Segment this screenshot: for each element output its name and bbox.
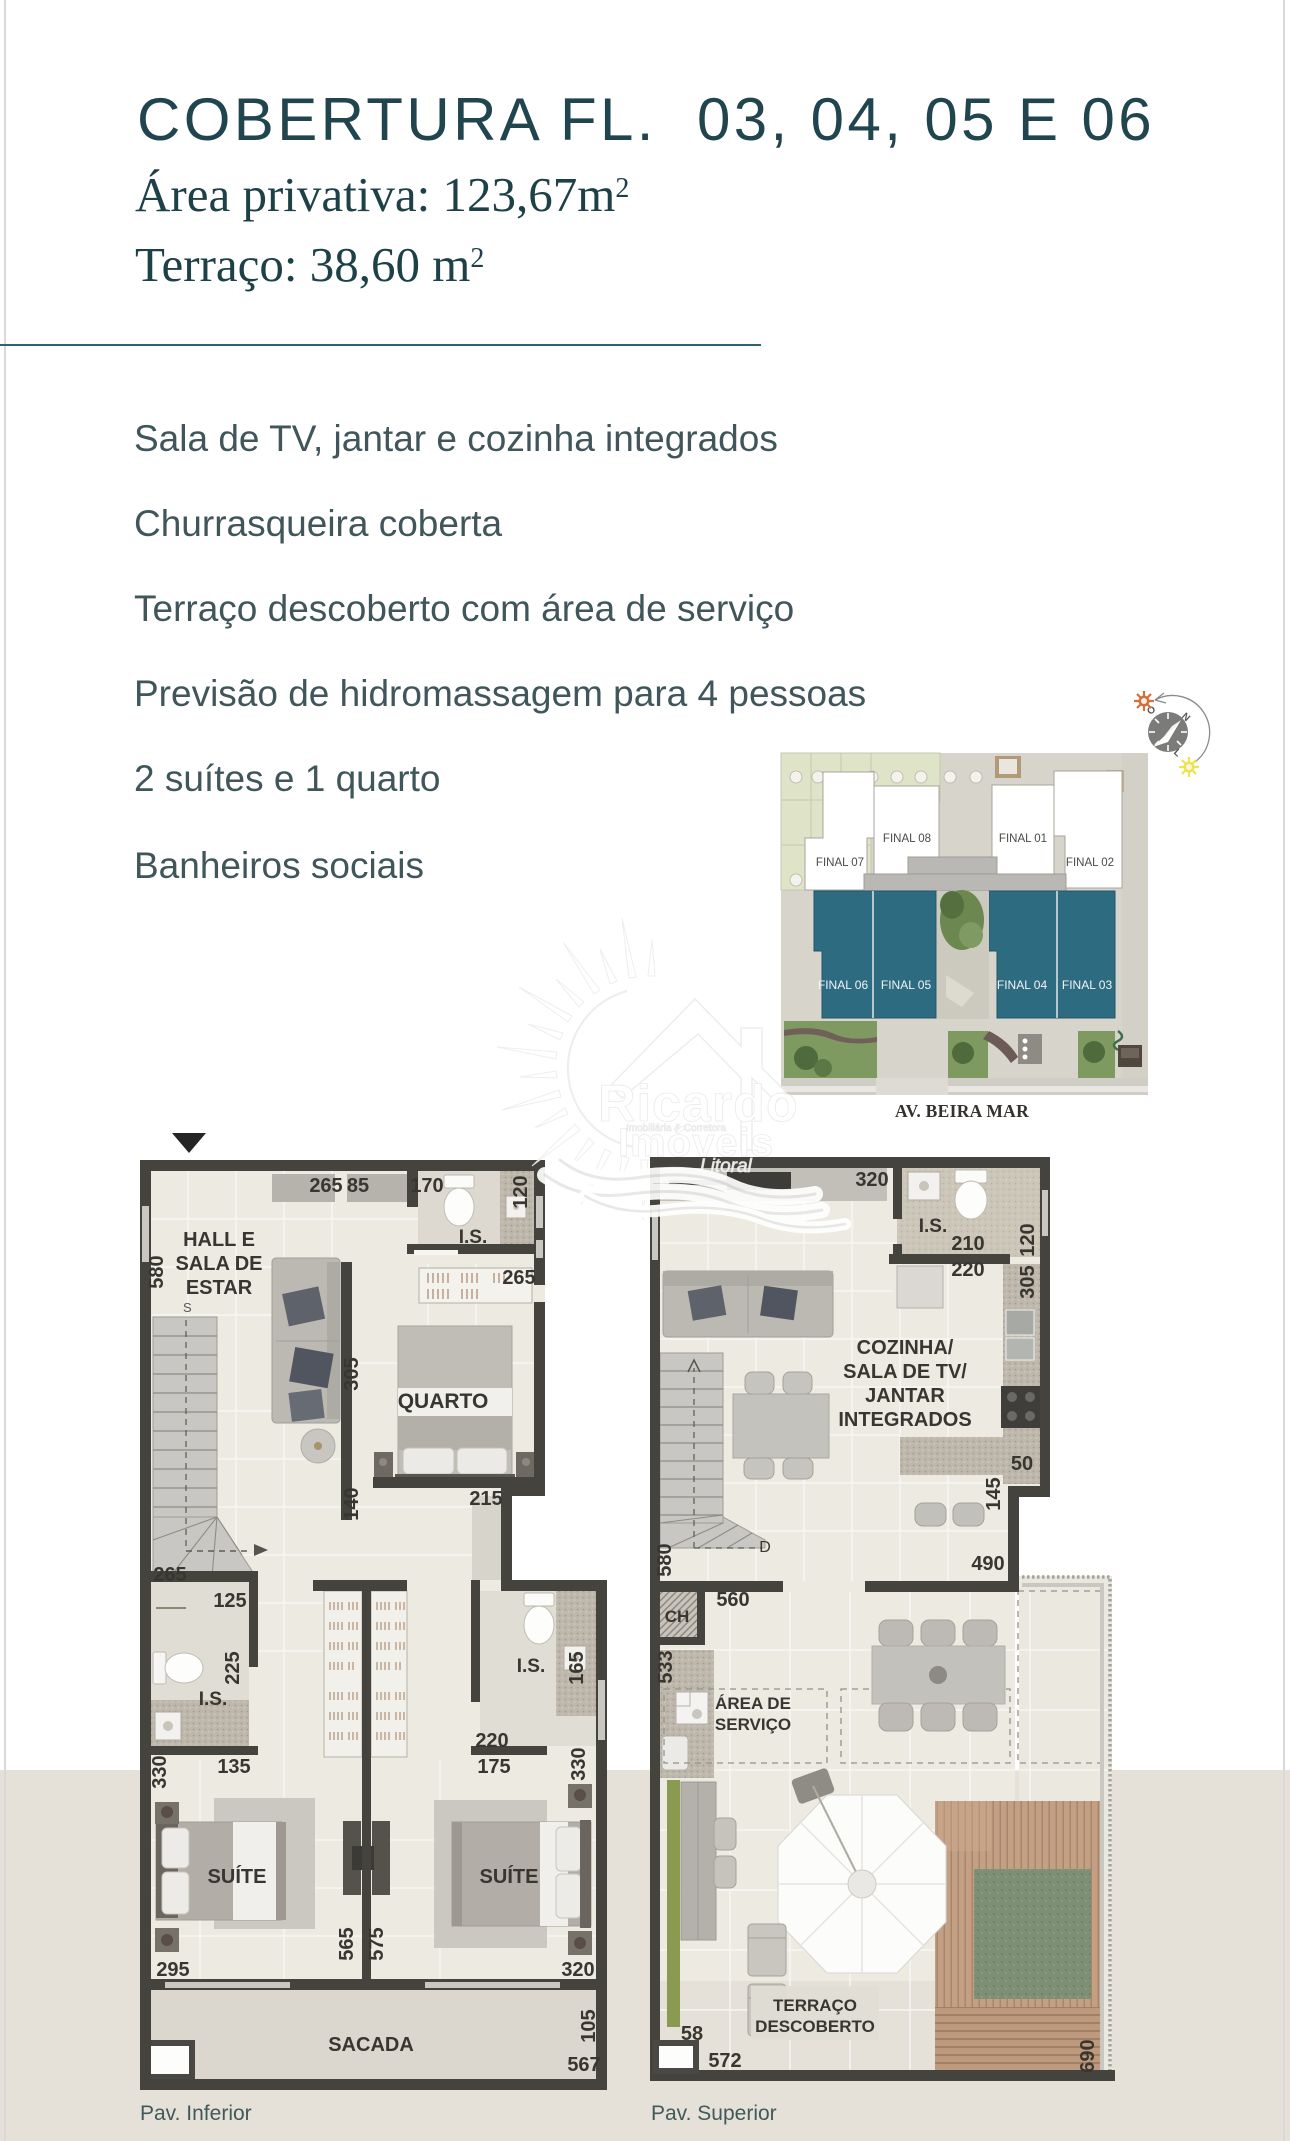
svg-text:330: 330 (568, 1747, 590, 1780)
svg-text:265: 265 (502, 1267, 535, 1289)
svg-text:210: 210 (951, 1233, 984, 1255)
svg-text:575: 575 (366, 1927, 388, 1960)
svg-text:FINAL 07: FINAL 07 (816, 857, 864, 869)
svg-text:O: O (1145, 704, 1158, 718)
svg-text:170: 170 (410, 1175, 443, 1197)
svg-text:I.S.: I.S. (919, 1216, 948, 1237)
svg-text:FINAL 02: FINAL 02 (1066, 857, 1114, 869)
svg-text:ESTAR: ESTAR (186, 1277, 253, 1299)
svg-text:FINAL 05: FINAL 05 (881, 978, 932, 992)
svg-text:FINAL 06: FINAL 06 (818, 978, 869, 992)
svg-text:580: 580 (146, 1255, 168, 1288)
svg-text:565: 565 (336, 1927, 358, 1960)
svg-text:AV. BEIRA MAR: AV. BEIRA MAR (895, 1101, 1029, 1121)
svg-text:175: 175 (477, 1756, 510, 1778)
svg-text:305: 305 (341, 1357, 363, 1390)
svg-text:I.S.: I.S. (459, 1227, 488, 1248)
svg-text:165: 165 (566, 1651, 588, 1684)
svg-text:567: 567 (567, 2054, 600, 2076)
svg-text:215: 215 (469, 1488, 502, 1510)
svg-text:ÁREA DE: ÁREA DE (715, 1694, 791, 1713)
svg-text:SALA DE: SALA DE (175, 1253, 262, 1275)
svg-text:220: 220 (951, 1259, 984, 1281)
svg-text:SALA DE TV/: SALA DE TV/ (843, 1361, 967, 1383)
svg-text:572: 572 (708, 2050, 741, 2072)
svg-text:FINAL 01: FINAL 01 (999, 833, 1047, 845)
svg-text:560: 560 (716, 1589, 749, 1611)
svg-text:220: 220 (475, 1730, 508, 1752)
svg-text:295: 295 (156, 1959, 189, 1981)
svg-text:I.S.: I.S. (199, 1689, 228, 1710)
svg-text:85: 85 (347, 1175, 369, 1197)
svg-text:HALL E: HALL E (183, 1229, 255, 1251)
svg-text:125: 125 (213, 1590, 246, 1612)
svg-text:265: 265 (153, 1564, 186, 1586)
svg-text:320: 320 (561, 1959, 594, 1981)
svg-text:FINAL 08: FINAL 08 (883, 833, 931, 845)
svg-text:SUÍTE: SUÍTE (480, 1865, 539, 1888)
svg-text:265: 265 (309, 1175, 342, 1197)
svg-text:105: 105 (578, 2009, 600, 2042)
svg-text:120: 120 (510, 1175, 532, 1208)
svg-text:50: 50 (1011, 1453, 1033, 1475)
svg-text:135: 135 (217, 1756, 250, 1778)
svg-text:COZINHA/: COZINHA/ (857, 1337, 954, 1359)
svg-text:533: 533 (655, 1650, 677, 1683)
svg-text:225: 225 (222, 1651, 244, 1684)
svg-text:I.S.: I.S. (517, 1656, 546, 1677)
svg-text:FINAL 03: FINAL 03 (1062, 978, 1113, 992)
svg-text:S: S (183, 1300, 192, 1315)
svg-text:INTEGRADOS: INTEGRADOS (838, 1409, 971, 1431)
svg-text:305: 305 (1017, 1265, 1039, 1298)
svg-text:145: 145 (983, 1477, 1005, 1510)
svg-text:JANTAR: JANTAR (865, 1385, 945, 1407)
svg-text:D: D (759, 1539, 771, 1556)
svg-text:580: 580 (654, 1543, 676, 1576)
svg-text:SACADA: SACADA (328, 2034, 414, 2056)
svg-text:FINAL 04: FINAL 04 (997, 978, 1048, 992)
svg-text:320: 320 (855, 1169, 888, 1191)
svg-text:QUARTO: QUARTO (398, 1390, 489, 1413)
svg-text:690: 690 (1077, 2039, 1099, 2072)
svg-text:CH: CH (665, 1607, 690, 1626)
svg-text:140: 140 (341, 1487, 363, 1520)
svg-text:490: 490 (971, 1553, 1004, 1575)
svg-text:SERVIÇO: SERVIÇO (715, 1715, 791, 1734)
svg-text:SUÍTE: SUÍTE (208, 1865, 267, 1888)
svg-text:330: 330 (149, 1755, 171, 1788)
svg-text:DESCOBERTO: DESCOBERTO (755, 2017, 875, 2036)
svg-text:120: 120 (1017, 1223, 1039, 1256)
svg-text:TERRAÇO: TERRAÇO (773, 1996, 857, 2015)
